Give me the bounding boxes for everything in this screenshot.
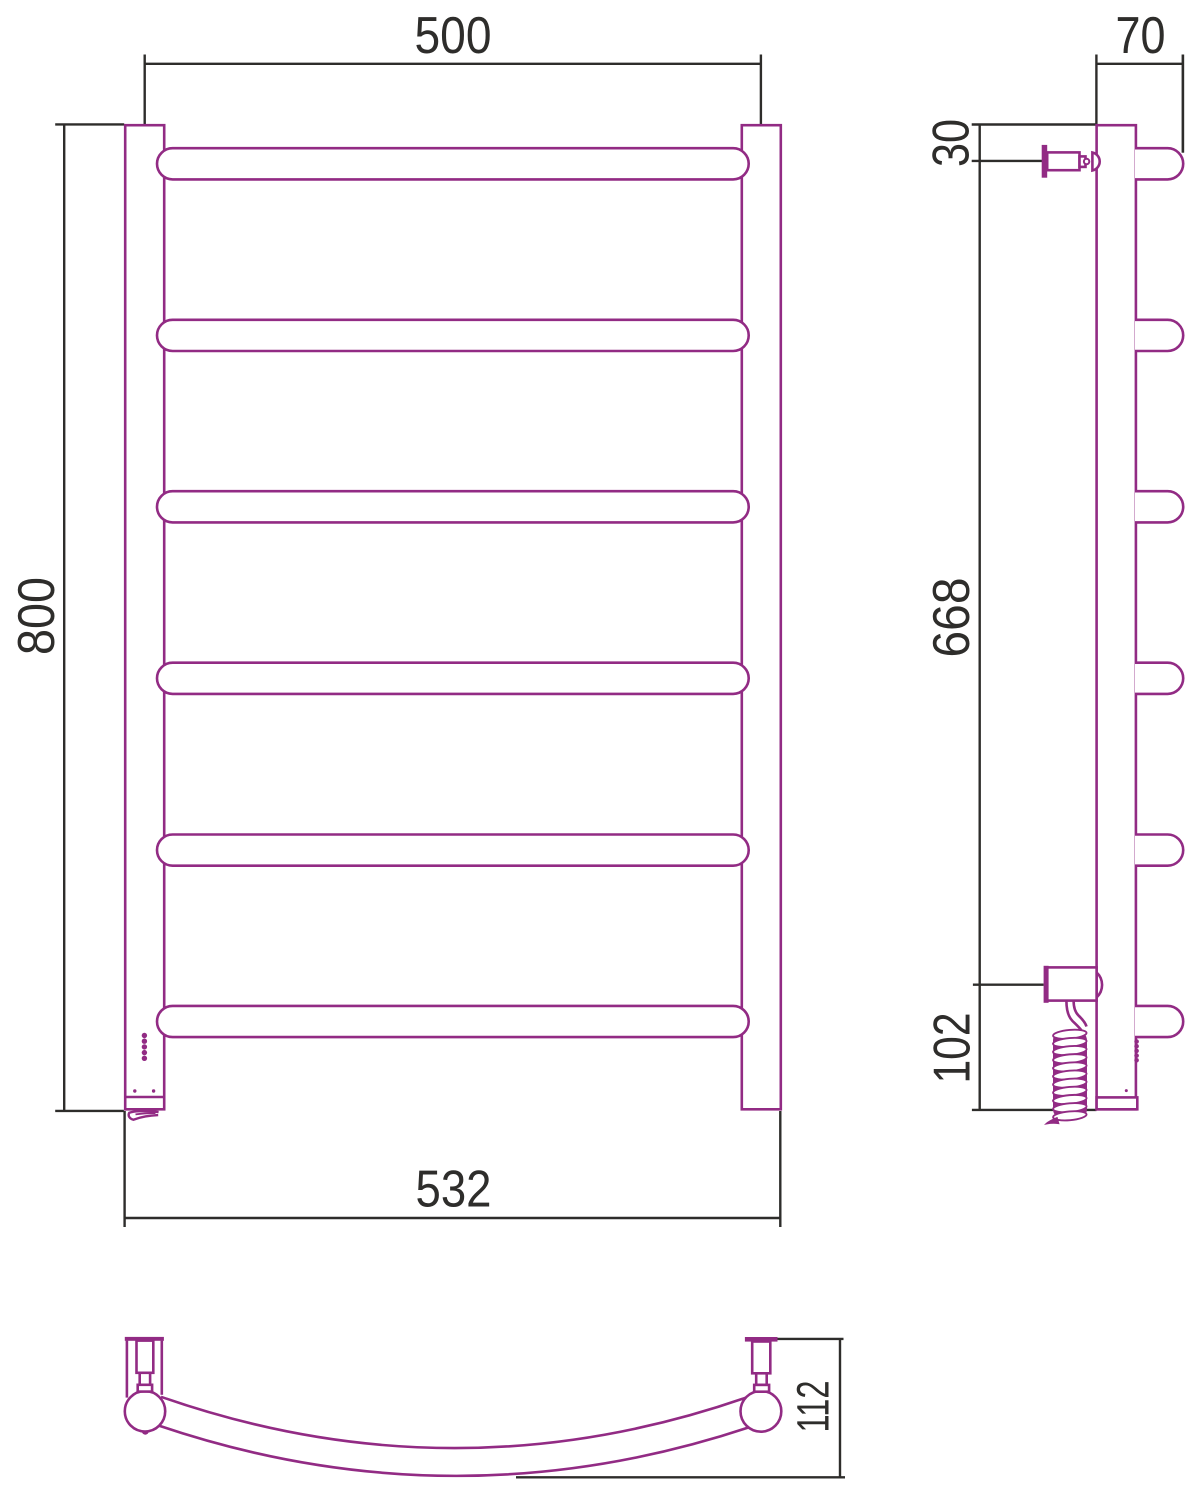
svg-text:102: 102: [923, 1013, 981, 1084]
svg-text:532: 532: [416, 1160, 492, 1218]
svg-text:800: 800: [7, 577, 65, 655]
svg-text:668: 668: [922, 578, 980, 658]
svg-text:30: 30: [922, 119, 980, 167]
svg-text:112: 112: [788, 1381, 839, 1433]
svg-text:70: 70: [1116, 6, 1166, 64]
svg-text:500: 500: [415, 6, 492, 64]
